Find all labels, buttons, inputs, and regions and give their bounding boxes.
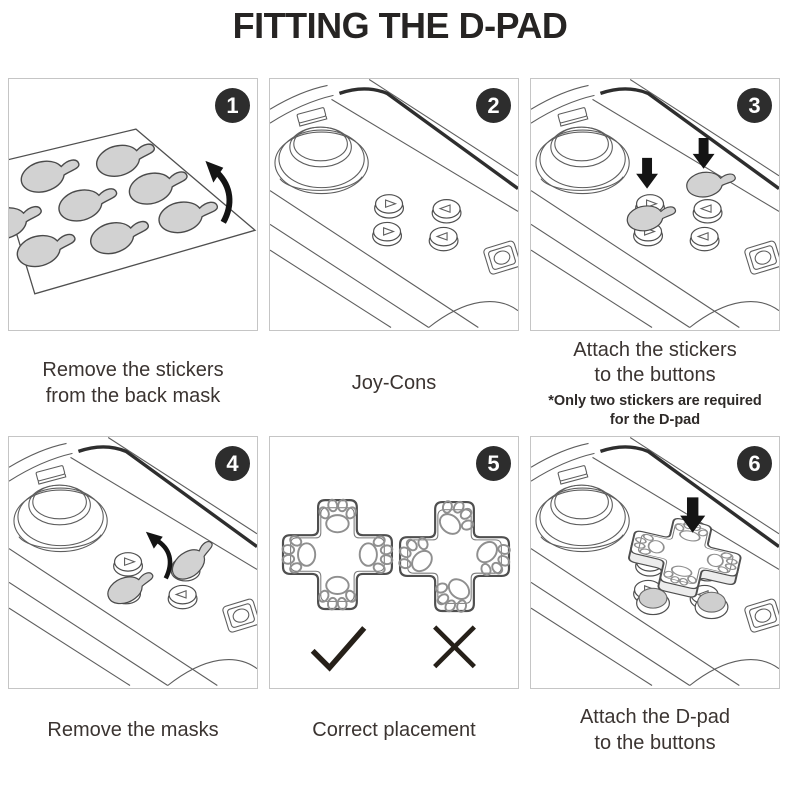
step-2: 2 Joy-Cons xyxy=(269,78,519,436)
step-3: 3 Attach the stickers to the buttons *On… xyxy=(530,78,780,436)
step-4-panel: 4 xyxy=(8,436,258,689)
dpad-incorrect xyxy=(390,492,518,620)
caption-note-line: *Only two stickers are required xyxy=(548,392,762,411)
caption-line: to the buttons xyxy=(594,363,715,389)
step-badge: 6 xyxy=(737,446,772,481)
gray-button xyxy=(637,588,670,614)
caption-line: Attach the stickers xyxy=(573,338,736,364)
down-arrow-icon xyxy=(636,158,658,189)
caption-line: Attach the D-pad xyxy=(580,705,730,731)
step-5-panel: 5 xyxy=(269,436,519,689)
caption-line: to the buttons xyxy=(594,731,715,757)
x-mark-icon xyxy=(435,627,475,667)
step-5-caption: Correct placement xyxy=(269,689,519,773)
page-title: FITTING THE D-PAD xyxy=(0,5,800,47)
step-2-caption: Joy-Cons xyxy=(269,331,519,436)
step-1-panel: 1 xyxy=(8,78,258,331)
step-4: 4 Remove the masks xyxy=(8,436,258,773)
step-1: 1 Remove the stickers from the back mask xyxy=(8,78,258,436)
step-badge: 2 xyxy=(476,88,511,123)
dpad-correct xyxy=(282,499,393,610)
caption-line: Remove the masks xyxy=(47,718,218,744)
step-6-caption: Attach the D-pad to the buttons xyxy=(530,689,780,773)
step-2-panel: 2 xyxy=(269,78,519,331)
caption-line: Joy-Cons xyxy=(352,371,436,397)
curved-arrow-icon xyxy=(146,532,170,579)
step-5: 5 Correct placement xyxy=(269,436,519,773)
step-3-caption: Attach the stickers to the buttons *Only… xyxy=(530,331,780,436)
step-badge: 1 xyxy=(215,88,250,123)
steps-grid: 1 Remove the stickers from the back mask… xyxy=(8,78,792,773)
step-4-caption: Remove the masks xyxy=(8,689,258,773)
caption-note-line: for the D-pad xyxy=(610,411,700,430)
step-badge: 5 xyxy=(476,446,511,481)
down-arrow-icon xyxy=(693,138,715,169)
step-6: 6 Attach the D-pad to the buttons xyxy=(530,436,780,773)
caption-line: Remove the stickers xyxy=(42,358,223,384)
checkmark-icon xyxy=(313,628,365,668)
step-3-panel: 3 xyxy=(530,78,780,331)
gray-button xyxy=(695,592,728,618)
step-6-panel: 6 xyxy=(530,436,780,689)
step-badge: 3 xyxy=(737,88,772,123)
step-1-caption: Remove the stickers from the back mask xyxy=(8,331,258,436)
step-badge: 4 xyxy=(215,446,250,481)
instruction-sheet: FITTING THE D-PAD xyxy=(0,0,800,800)
caption-line: from the back mask xyxy=(46,384,221,410)
caption-line: Correct placement xyxy=(312,718,475,744)
